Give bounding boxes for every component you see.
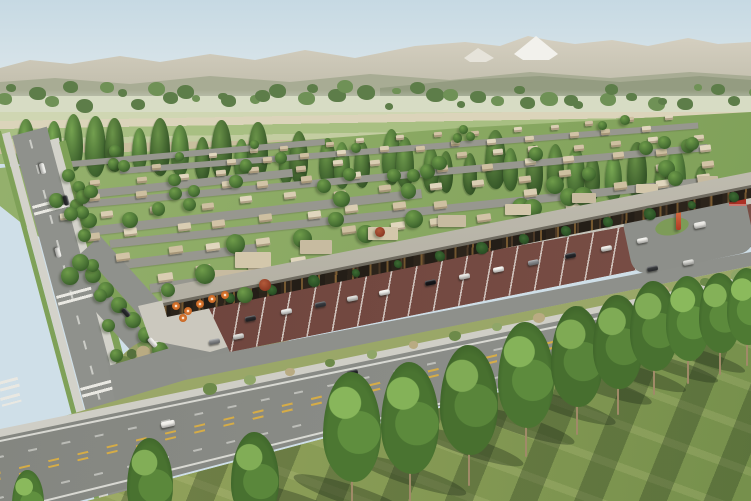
house xyxy=(333,159,344,166)
house xyxy=(471,179,484,187)
estate-tree xyxy=(226,234,245,253)
estate-tree xyxy=(432,156,446,170)
poplar-tree xyxy=(503,148,518,191)
estate-tree xyxy=(582,167,596,181)
house xyxy=(124,227,138,237)
house xyxy=(513,127,521,133)
patio-umbrella xyxy=(172,302,180,310)
estate-tree xyxy=(343,168,356,181)
estate-tree xyxy=(401,183,417,199)
house xyxy=(206,242,221,252)
distant-tree xyxy=(658,98,667,105)
verge-shrub xyxy=(367,350,378,359)
house xyxy=(702,160,715,168)
house xyxy=(574,144,585,151)
estate-tree xyxy=(168,174,181,187)
house xyxy=(551,125,559,131)
palm-tree xyxy=(644,208,655,219)
patio-umbrella xyxy=(196,300,204,308)
distant-tree xyxy=(163,92,178,104)
palm-tree xyxy=(308,275,319,286)
house xyxy=(584,121,592,127)
estate-tree xyxy=(109,145,121,157)
estate-tree xyxy=(152,202,166,216)
distant-tree xyxy=(600,93,616,106)
house xyxy=(262,157,271,164)
distant-tree xyxy=(677,98,692,110)
house xyxy=(493,148,504,155)
retail-building xyxy=(505,204,531,215)
estate-tree xyxy=(183,198,196,211)
boulevard-tree xyxy=(94,289,107,302)
house xyxy=(379,184,392,192)
distant-tree xyxy=(307,84,318,93)
house xyxy=(396,135,404,141)
house xyxy=(415,146,424,153)
house xyxy=(135,191,147,199)
estate-tree xyxy=(317,179,331,193)
distant-tree xyxy=(520,97,536,109)
boulevard-tree xyxy=(102,319,115,332)
distant-tree xyxy=(392,88,400,95)
verge-shrub xyxy=(449,331,461,341)
distant-tree xyxy=(255,90,270,102)
estate-tree xyxy=(453,133,463,143)
house xyxy=(301,176,313,184)
house xyxy=(482,163,494,171)
palm-tree xyxy=(603,217,612,226)
distant-tree xyxy=(443,89,458,101)
house xyxy=(655,148,667,156)
estate-tree xyxy=(61,267,78,284)
distant-tree xyxy=(148,82,165,96)
estate-tree xyxy=(529,147,543,161)
patio-umbrella xyxy=(208,295,216,303)
house xyxy=(227,159,236,166)
distant-tree xyxy=(221,95,236,107)
estate-tree xyxy=(387,169,401,183)
estate-tree xyxy=(275,152,287,164)
distant-tree xyxy=(29,87,45,100)
estate-tree xyxy=(459,125,468,134)
distant-tree xyxy=(694,84,703,91)
distant-tree xyxy=(540,92,558,106)
distant-tree xyxy=(45,96,59,108)
distant-tree xyxy=(410,82,426,94)
house xyxy=(434,200,448,210)
palm-tree xyxy=(561,226,571,236)
palm-tree xyxy=(435,251,445,261)
house xyxy=(700,145,712,153)
distant-tree xyxy=(337,80,354,94)
estate-tree xyxy=(229,175,243,189)
house xyxy=(524,135,533,142)
house xyxy=(101,210,114,218)
house xyxy=(370,159,381,166)
retail-building xyxy=(235,252,271,268)
retail-building xyxy=(572,193,596,203)
estate-tree xyxy=(84,185,97,198)
house xyxy=(239,195,252,203)
palm-tree xyxy=(729,192,738,201)
estate-tree xyxy=(546,176,564,194)
house xyxy=(296,165,307,172)
distant-tree xyxy=(470,91,486,103)
distant-tree xyxy=(605,84,618,95)
estate-tree xyxy=(658,136,671,149)
red-accent-tree xyxy=(375,227,385,237)
distant-tree xyxy=(728,96,740,106)
house xyxy=(665,115,673,121)
house xyxy=(456,151,467,158)
house xyxy=(177,222,191,232)
house xyxy=(486,138,495,145)
distant-tree xyxy=(426,88,443,102)
house xyxy=(258,213,272,223)
house xyxy=(613,181,627,191)
boulevard-tree xyxy=(62,169,75,182)
house xyxy=(137,176,148,183)
distant-tree xyxy=(192,95,200,102)
house xyxy=(524,188,538,198)
estate-tree xyxy=(240,159,253,172)
estate-tree xyxy=(328,212,343,227)
house xyxy=(152,163,161,170)
estate-tree xyxy=(686,137,699,150)
house xyxy=(299,152,308,159)
distant-tree xyxy=(457,101,465,108)
estate-tree xyxy=(351,143,361,153)
plaza-tree xyxy=(161,283,175,297)
verge-shrub xyxy=(203,383,217,395)
estate-tree xyxy=(64,207,78,221)
house xyxy=(642,126,651,133)
distant-tree xyxy=(573,101,583,109)
distant-tree xyxy=(269,84,286,98)
estate-tree xyxy=(188,185,200,197)
patio-umbrella xyxy=(179,314,187,322)
boulevard-tree xyxy=(78,229,91,242)
house xyxy=(570,132,579,139)
distant-tree xyxy=(514,86,525,95)
distant-tree xyxy=(626,93,636,101)
house xyxy=(559,169,572,177)
house xyxy=(379,146,388,153)
retail-building xyxy=(300,240,332,254)
distant-tree xyxy=(6,84,16,92)
retail-building xyxy=(438,215,466,227)
plaza-tree xyxy=(195,264,215,284)
distant-tree xyxy=(76,99,93,113)
distant-tree xyxy=(357,85,375,99)
distant-tree xyxy=(711,84,725,95)
distant-tree xyxy=(298,92,315,105)
house xyxy=(201,202,214,210)
red-accent-tree xyxy=(259,279,271,291)
poplar-tree xyxy=(463,153,477,195)
house xyxy=(256,180,268,188)
patio-umbrella xyxy=(221,291,229,299)
house xyxy=(612,152,624,160)
house xyxy=(434,132,442,138)
distant-tree xyxy=(63,81,78,93)
estate-tree xyxy=(333,191,350,208)
estate-tree xyxy=(405,210,423,228)
palm-tree xyxy=(476,242,487,253)
distant-tree xyxy=(385,103,393,110)
house xyxy=(212,219,226,229)
distant-tree xyxy=(131,99,144,110)
distant-tree xyxy=(100,82,115,94)
crosswalk xyxy=(0,377,20,392)
foreground-poplar xyxy=(498,322,553,428)
distant-tree xyxy=(491,96,504,106)
estate-tree xyxy=(169,187,182,200)
house xyxy=(429,182,442,190)
distant-tree xyxy=(118,89,127,97)
house xyxy=(326,142,334,148)
estate-tree xyxy=(250,140,259,149)
plaza-tree xyxy=(237,287,253,303)
house xyxy=(216,169,227,176)
boulevard-tree xyxy=(110,349,123,362)
crosswalk xyxy=(0,393,22,407)
aerial-masterplan-rendering xyxy=(0,0,751,501)
house xyxy=(209,153,217,159)
house xyxy=(519,175,532,183)
